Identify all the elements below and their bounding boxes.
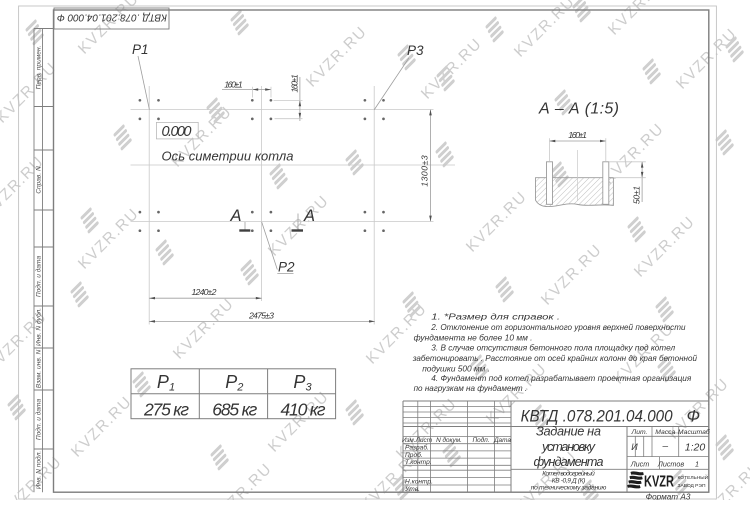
svg-text:–: – [662,441,669,452]
svg-text:Инв. N дубл.: Инв. N дубл. [35,308,43,346]
svg-text:Взам. инв. N: Взам. инв. N [36,350,43,389]
svg-text:50±1: 50±1 [631,186,641,204]
svg-text:160±1: 160±1 [224,79,243,89]
svg-text:ЗАВОД РЭП: ЗАВОД РЭП [678,483,706,489]
svg-text:Дата: Дата [493,437,511,444]
svg-text:Подп. и дата: Подп. и дата [35,399,43,441]
svg-text:по нагрузкам на фундамент .: по нагрузкам на фундамент . [414,383,528,393]
svg-text:Ось симетрии котла: Ось симетрии котла [162,149,294,164]
svg-text:Разраб.: Разраб. [405,444,429,452]
svg-text:КВ -0,9 Д (К): КВ -0,9 Д (К) [552,478,586,485]
svg-text:Справ. N: Справ. N [36,166,43,194]
svg-text:1: 1 [695,460,699,469]
svg-text:Лит.: Лит. [631,429,648,436]
svg-text:И: И [631,442,638,452]
svg-text:Задание на: Задание на [536,423,601,438]
svg-text:1300±3: 1300±3 [420,155,430,187]
svg-text:фундамента: фундамента [534,454,604,469]
svg-text:3. В случае отсутствия бетонно: 3. В случае отсутствия бетонного пола пл… [431,343,675,353]
svg-text:Лист: Лист [630,460,650,469]
svg-text:Масштаб: Масштаб [678,428,711,436]
svg-text:Н.контр.: Н.контр. [405,479,433,486]
svg-text:Подп. и дата: Подп. и дата [35,256,43,298]
svg-text:Котел водогрейный: Котел водогрейный [542,470,595,478]
svg-text:685 кг: 685 кг [212,400,257,420]
svg-text:KVZR: KVZR [644,474,674,491]
svg-text:забетонировать . Расстояние от: забетонировать . Расстояние от осей край… [412,353,698,363]
svg-text:Р1: Р1 [132,42,149,57]
svg-text:N докум.: N докум. [436,436,462,444]
svg-text:А – А (1:5): А – А (1:5) [538,101,619,118]
svg-text:1:20: 1:20 [685,442,706,454]
svg-text:Подп.: Подп. [472,436,489,444]
svg-text:2. Отклонение от горизонтально: 2. Отклонение от горизонтального уровня … [430,322,685,332]
svg-text:по техническому заданию: по техническому заданию [531,484,607,492]
svg-text:4. Фундамент под котел разраба: 4. Фундамент под котел разрабатывает про… [431,373,691,383]
svg-text:1. *Размер для справок .: 1. *Размер для справок . [431,312,560,322]
svg-text:Перв. примен.: Перв. примен. [36,45,43,89]
svg-text:Т.контр.: Т.контр. [405,459,432,466]
svg-text:160±1: 160±1 [568,130,587,140]
svg-text:0.000: 0.000 [162,124,192,140]
svg-text:Инв. N подл.: Инв. N подл. [35,451,43,490]
svg-text:установку: установку [541,439,597,454]
svg-text:фундамента не более 10 мм .: фундамента не более 10 мм . [414,332,533,342]
svg-text:160±1: 160±1 [290,74,300,93]
svg-text:Р2: Р2 [278,260,295,275]
svg-text:2475±3: 2475±3 [248,310,274,320]
svg-text:Изм.Лист: Изм.Лист [402,437,433,444]
svg-text:Листов: Листов [657,460,684,469]
svg-text:Р3: Р3 [407,43,424,58]
svg-text:Утв.: Утв. [404,486,420,493]
svg-text:КВТД .078.201.04.000 Ф: КВТД .078.201.04.000 Ф [57,12,167,23]
svg-text:275 кг: 275 кг [143,400,189,420]
svg-text:Ф: Ф [687,407,701,426]
svg-text:Проб.: Проб. [405,451,423,459]
svg-text:410 кг: 410 кг [281,400,326,420]
svg-text:Формат А3: Формат А3 [646,493,691,501]
svg-text:А: А [303,207,315,225]
svg-text:А: А [230,207,242,225]
svg-text:Масса: Масса [655,429,675,436]
svg-text:1240±2: 1240±2 [192,287,217,297]
svg-text:подушки 500 мм .: подушки 500 мм . [422,363,490,373]
